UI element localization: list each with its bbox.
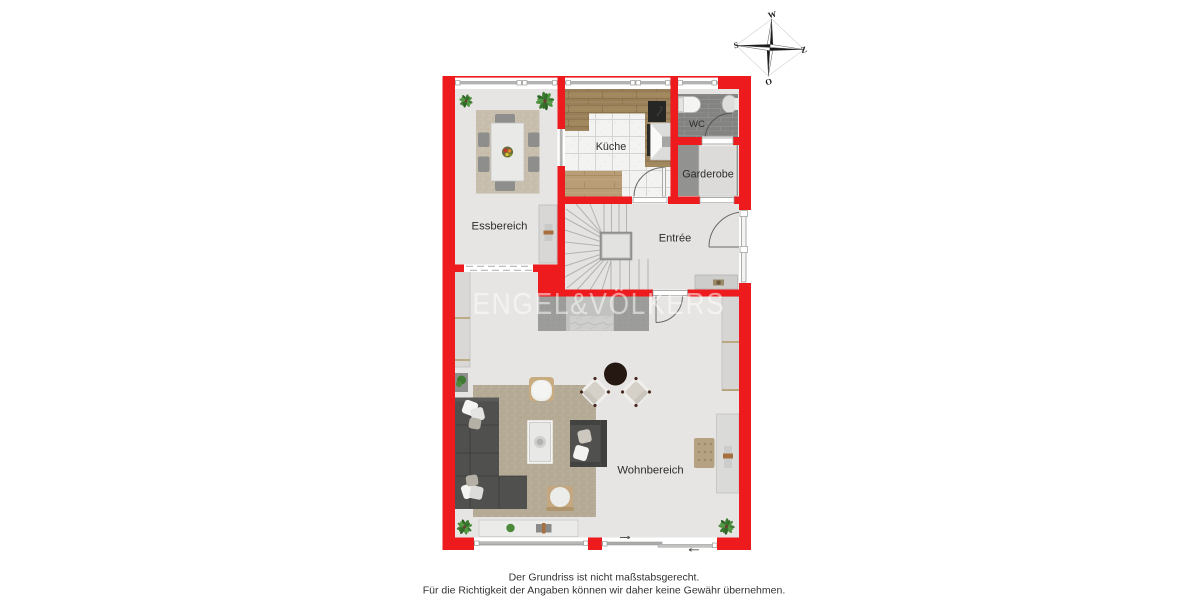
- svg-text:Garderobe: Garderobe: [682, 169, 734, 181]
- svg-text:Küche: Küche: [596, 141, 627, 153]
- svg-text:Essbereich: Essbereich: [472, 221, 528, 233]
- svg-text:Der Grundriss ist nicht maßsta: Der Grundriss ist nicht maßstabsgerecht.: [509, 572, 700, 584]
- svg-text:Entrée: Entrée: [659, 233, 691, 245]
- svg-text:ENGEL&VÖLKERS: ENGEL&VÖLKERS: [473, 286, 726, 321]
- svg-text:WC: WC: [689, 119, 705, 130]
- svg-text:Für die Richtigkeit der Angabe: Für die Richtigkeit der Angaben können w…: [423, 585, 785, 597]
- svg-text:Wohnbereich: Wohnbereich: [617, 465, 683, 477]
